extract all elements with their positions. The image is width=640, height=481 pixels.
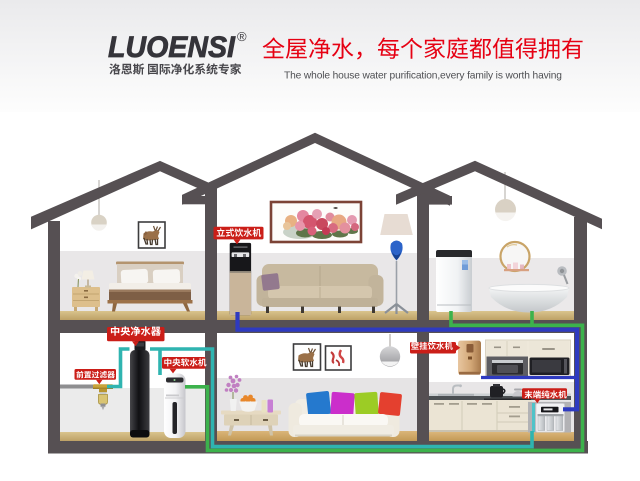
svg-text:The whole house water purifica: The whole house water purification,every… (284, 71, 562, 82)
svg-text:LUOENSI: LUOENSI (108, 31, 236, 64)
svg-text:®: ® (237, 29, 247, 44)
